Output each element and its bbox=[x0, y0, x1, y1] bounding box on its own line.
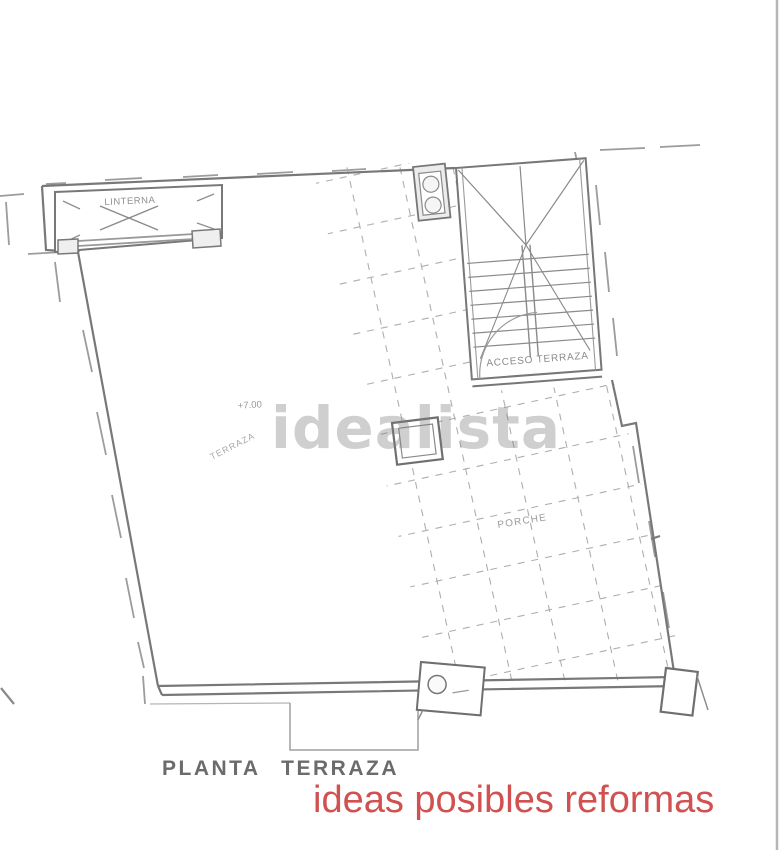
idealista-watermark: idealista bbox=[271, 394, 561, 462]
shaft-fixture bbox=[413, 164, 450, 221]
level-marker: +7.00 bbox=[238, 399, 263, 411]
bottom-step bbox=[290, 701, 418, 750]
terrace-label: TERRAZA bbox=[208, 431, 256, 462]
left-margin-tick bbox=[1, 688, 14, 704]
corner-pillar bbox=[661, 668, 698, 716]
floorplan-image: LINTERNA ACCESO TERRAZA +7.00 TERRAZA PO… bbox=[0, 0, 780, 850]
porch-label: PORCHE bbox=[497, 512, 548, 531]
corner-tick bbox=[697, 676, 708, 710]
skylight-label: LINTERNA bbox=[104, 195, 156, 208]
skylight-linterna: LINTERNA bbox=[55, 185, 222, 254]
drawing-title: PLANTA TERRAZA bbox=[162, 757, 399, 781]
drain-fixture bbox=[416, 662, 485, 725]
floorplan-drawing: LINTERNA ACCESO TERRAZA +7.00 TERRAZA PO… bbox=[0, 0, 780, 850]
agency-tagline: ideas posibles reformas bbox=[313, 779, 714, 822]
bottom-outer-line bbox=[150, 703, 290, 704]
staircase: ACCESO TERRAZA bbox=[456, 158, 602, 386]
